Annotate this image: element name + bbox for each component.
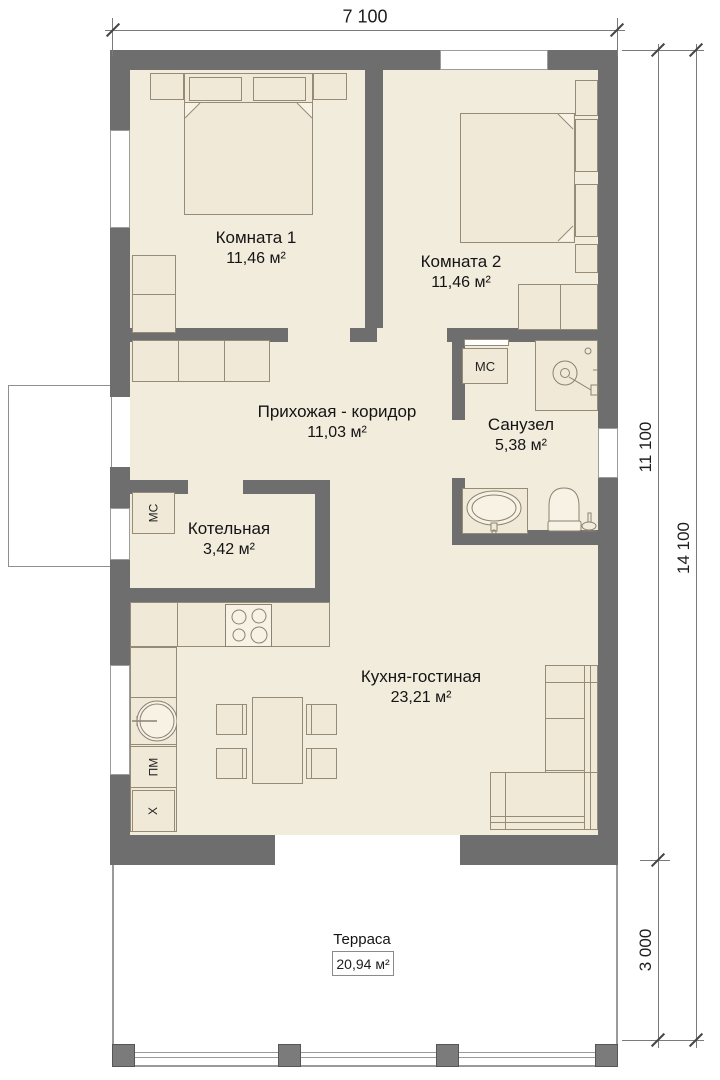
wall-bottom — [460, 835, 618, 865]
wall-left — [110, 775, 130, 835]
wall-left — [110, 50, 130, 130]
bathroom-area: 5,38 м² — [431, 436, 611, 457]
terrace-post — [436, 1044, 459, 1067]
witness-line — [617, 18, 618, 56]
terrace-railing-line — [112, 1052, 618, 1053]
pillow — [189, 77, 242, 101]
window-boiler-left — [110, 508, 130, 560]
sofa-cushion-line — [546, 770, 584, 771]
wall-right — [598, 478, 618, 835]
sofa-back-line — [584, 666, 585, 829]
room2-name: Комната 2 — [371, 251, 551, 273]
room2-area: 11,46 м² — [371, 273, 551, 294]
bathroom-sink-icon — [462, 488, 528, 535]
wardrobe-divider — [178, 340, 179, 382]
bathroom-label: Санузел 5,38 м² — [431, 414, 611, 457]
fridge-label: Х — [146, 807, 160, 815]
witness-line — [112, 18, 113, 56]
terrace-post — [278, 1044, 301, 1067]
wall-left — [110, 560, 130, 665]
blanket-fold-icon — [557, 225, 574, 242]
nightstand — [575, 244, 598, 273]
nightstand — [313, 73, 347, 100]
terrace-railing-line — [112, 1057, 618, 1058]
sofa-cushion-line — [546, 718, 584, 719]
stove-icon — [225, 604, 272, 647]
wall-top — [110, 50, 440, 70]
dishwasher-label: ПМ — [147, 758, 161, 777]
dimension-height-total: 14 100 — [674, 522, 694, 574]
dimension-height-terrace: 3 000 — [636, 929, 656, 972]
chair-back — [242, 748, 243, 779]
nightstand — [150, 73, 184, 100]
pillow — [575, 184, 598, 237]
terrace-post — [112, 1044, 135, 1067]
toilet-icon — [545, 484, 585, 534]
terrace-area: 20,94 м² — [336, 956, 389, 972]
wall-boiler-bottom — [130, 588, 330, 602]
blanket-edge — [184, 102, 313, 103]
chair-back — [311, 748, 312, 779]
room1-area: 11,46 м² — [166, 249, 346, 270]
dining-table — [252, 697, 303, 784]
dimension-line-right-inner — [658, 44, 659, 1048]
dishwasher: ПМ — [130, 746, 177, 788]
dimension-width-top: 7 100 — [342, 7, 387, 28]
kitchen-name: Кухня-гостиная — [331, 666, 511, 688]
hallway-label: Прихожая - коридор 11,03 м² — [237, 401, 437, 444]
blanket-fold-icon — [185, 103, 202, 120]
wardrobe-hallway — [132, 340, 270, 382]
room1-label: Комната 1 11,46 м² — [166, 227, 346, 270]
counter-divider — [177, 602, 178, 647]
terrace-area-box: 20,94 м² — [332, 951, 394, 976]
shower-icon — [535, 340, 599, 412]
window-room2-top — [440, 50, 548, 70]
bathroom-name: Санузел — [431, 414, 611, 436]
wardrobe-divider — [560, 284, 561, 330]
terrace-name: Терраса — [312, 930, 412, 950]
sofa-back-line — [590, 666, 591, 829]
room2-label: Комната 2 11,46 м² — [371, 251, 551, 294]
blanket-fold-icon — [296, 103, 313, 120]
window-room1-left — [110, 130, 130, 228]
witness-line — [622, 50, 704, 51]
bed-room2 — [460, 113, 575, 243]
wall-right — [598, 50, 618, 428]
kitchen-area: 23,21 м² — [331, 688, 511, 709]
hallway-name: Прихожая - коридор — [237, 401, 437, 423]
kitchen-sink-icon — [130, 697, 177, 745]
hallway-area: 11,03 м² — [237, 423, 437, 444]
pillow — [253, 77, 306, 101]
wall-left — [110, 228, 130, 397]
sofa-armrest — [505, 773, 506, 829]
nightstand — [575, 80, 598, 116]
terrace-post — [595, 1044, 618, 1067]
entrance-porch — [8, 385, 112, 567]
wall-hallway-pier — [350, 328, 377, 342]
washing-machine-label: МС — [475, 359, 495, 374]
washing-machine: МС — [462, 348, 508, 384]
boiler-label: Котельная 3,42 м² — [139, 518, 319, 561]
sofa-armrest — [546, 682, 597, 683]
wardrobe-divider — [224, 340, 225, 382]
dimension-height-house: 11 100 — [636, 422, 656, 473]
kitchen-label: Кухня-гостиная 23,21 м² — [331, 666, 511, 709]
dimension-line-top — [105, 30, 625, 31]
terrace-label: Терраса — [312, 930, 412, 950]
window-kitchen-left — [110, 665, 130, 775]
wardrobe-divider — [132, 294, 176, 295]
room1-name: Комната 1 — [166, 227, 346, 249]
floor-tap-icon — [580, 512, 598, 534]
fridge: Х — [132, 790, 175, 832]
boiler-name: Котельная — [139, 518, 319, 540]
floor-plan: МС МС — [0, 0, 720, 1080]
boiler-area: 3,42 м² — [139, 540, 319, 561]
dimension-line-right-outer — [696, 44, 697, 1048]
witness-line — [622, 1040, 704, 1041]
blanket-fold-icon — [557, 114, 574, 131]
towel-bar — [464, 339, 509, 346]
chair-back — [311, 704, 312, 735]
wall-left — [110, 467, 130, 508]
pillow — [575, 119, 598, 172]
wall-bottom — [110, 835, 275, 865]
chair-back — [242, 704, 243, 735]
